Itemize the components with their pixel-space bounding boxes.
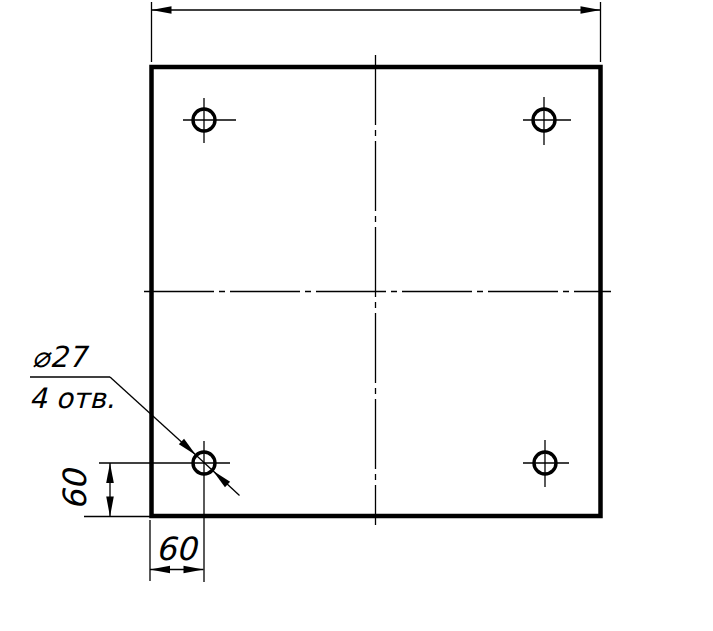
dim-bottom-value: 60 <box>156 530 199 568</box>
hole-top-left <box>183 98 236 143</box>
annotation-text-group: ⌀27 4 отв. 60 60 <box>29 340 199 568</box>
technical-drawing-canvas: ⌀27 4 отв. 60 60 <box>0 0 713 631</box>
hole-top-right <box>523 97 571 145</box>
dim-top-line-arrow <box>152 6 172 14</box>
hole-count-label: 4 отв. <box>29 382 115 415</box>
hole-diameter-label: ⌀27 <box>32 340 90 374</box>
dim-left-line-arrow <box>106 463 114 483</box>
dim-left-line-arrow <box>106 497 114 517</box>
dim-top-line-arrow <box>581 6 601 14</box>
holes-group <box>99 97 571 582</box>
hole-bottom-right <box>523 440 569 487</box>
dim-left-value: 60 <box>56 467 94 510</box>
